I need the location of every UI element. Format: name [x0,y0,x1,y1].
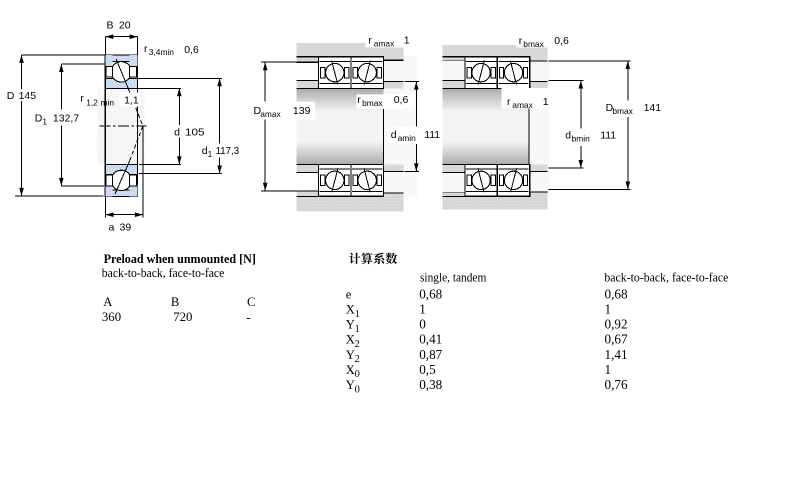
svg-text:1: 1 [208,149,213,159]
svg-text:117,3: 117,3 [216,145,240,157]
svg-text:amax: amax [374,39,395,49]
svg-text:amax: amax [260,109,281,119]
svg-text:r: r [368,34,372,46]
svg-text:0,92: 0,92 [605,317,628,332]
svg-text:Y: Y [346,378,355,392]
svg-text:1: 1 [355,309,360,320]
svg-text:1,2: 1,2 [86,97,98,107]
svg-text:1: 1 [543,96,549,108]
svg-text:A: A [103,295,112,309]
svg-text:back-to-back, face-to-face: back-to-back, face-to-face [604,270,728,284]
svg-text:0,76: 0,76 [605,377,628,392]
svg-text:1: 1 [605,362,612,377]
svg-text:3,4min: 3,4min [149,47,174,57]
svg-text:0,67: 0,67 [605,332,628,347]
svg-text:B: B [107,20,114,32]
svg-text:0,5: 0,5 [419,362,436,377]
svg-text:r: r [144,43,148,55]
svg-text:2: 2 [355,354,360,365]
svg-text:d: d [391,129,397,141]
svg-text:bmax: bmax [523,39,544,49]
svg-text:1: 1 [605,302,612,317]
svg-text:X: X [346,303,355,317]
svg-text:139: 139 [293,105,311,117]
svg-text:1: 1 [419,302,426,317]
svg-text:1: 1 [42,116,47,126]
svg-text:111: 111 [600,130,616,142]
svg-text:360: 360 [102,310,121,324]
svg-text:1: 1 [404,35,410,47]
svg-text:back-to-back, face-to-face: back-to-back, face-to-face [102,266,225,280]
svg-text:0,6: 0,6 [184,44,199,56]
svg-text:1,1: 1,1 [124,95,139,107]
svg-text:111: 111 [424,129,440,141]
svg-text:0,68: 0,68 [605,286,628,301]
svg-text:141: 141 [644,102,662,114]
svg-text:Y: Y [346,318,355,332]
svg-text:r: r [357,94,361,106]
svg-text:1,41: 1,41 [605,347,628,362]
svg-text:single, tandem: single, tandem [420,270,486,284]
svg-text:X: X [346,333,355,347]
svg-text:720: 720 [173,310,192,324]
svg-text:0: 0 [419,317,426,332]
svg-text:Preload when unmounted [N]: Preload when unmounted [N] [104,251,256,266]
svg-text:d: d [565,130,571,142]
svg-text:B: B [171,295,179,309]
svg-text:0,38: 0,38 [419,377,442,392]
svg-text:0,68: 0,68 [419,286,442,301]
svg-text:0,6: 0,6 [554,35,569,47]
svg-text:-: - [246,310,250,324]
svg-text:0: 0 [355,384,360,395]
svg-text:Y: Y [346,348,355,362]
svg-text:r: r [519,35,523,47]
svg-text:r: r [507,96,511,108]
svg-text:r: r [80,93,84,105]
svg-text:0: 0 [355,369,360,380]
svg-text:0,6: 0,6 [394,94,409,106]
svg-text:bmax: bmax [612,106,633,116]
svg-text:1: 1 [355,324,360,335]
svg-text:e: e [346,287,352,301]
svg-text:C: C [247,295,255,309]
svg-text:min: min [101,97,115,107]
svg-text:0,87: 0,87 [419,347,442,362]
svg-text:bmax: bmax [362,98,383,108]
svg-text:d: d [174,126,180,138]
svg-text:132,7: 132,7 [53,112,79,124]
svg-text:bmin: bmin [572,134,590,144]
svg-text:amin: amin [398,133,416,143]
svg-text:0,41: 0,41 [419,332,442,347]
svg-text:145: 145 [19,90,37,102]
svg-text:X: X [346,363,355,377]
svg-text:39: 39 [120,222,132,234]
svg-text:amax: amax [512,100,533,110]
svg-text:D: D [7,90,15,102]
svg-text:a: a [109,222,115,234]
svg-text:2: 2 [355,339,360,350]
svg-text:20: 20 [119,20,131,32]
svg-text:105: 105 [185,126,205,138]
